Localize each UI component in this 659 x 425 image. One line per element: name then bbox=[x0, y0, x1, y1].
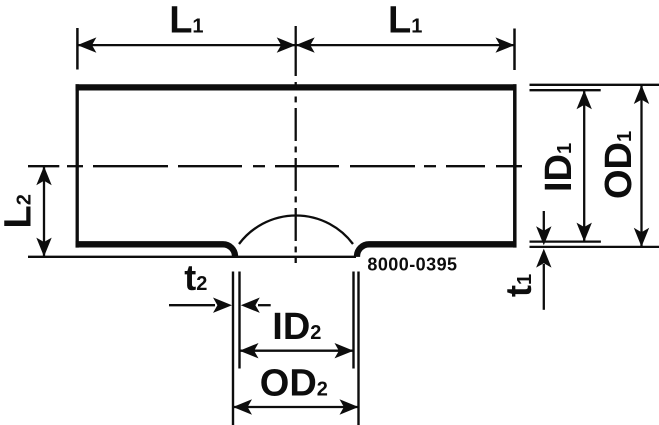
svg-text:8000-0395: 8000-0395 bbox=[367, 254, 457, 274]
